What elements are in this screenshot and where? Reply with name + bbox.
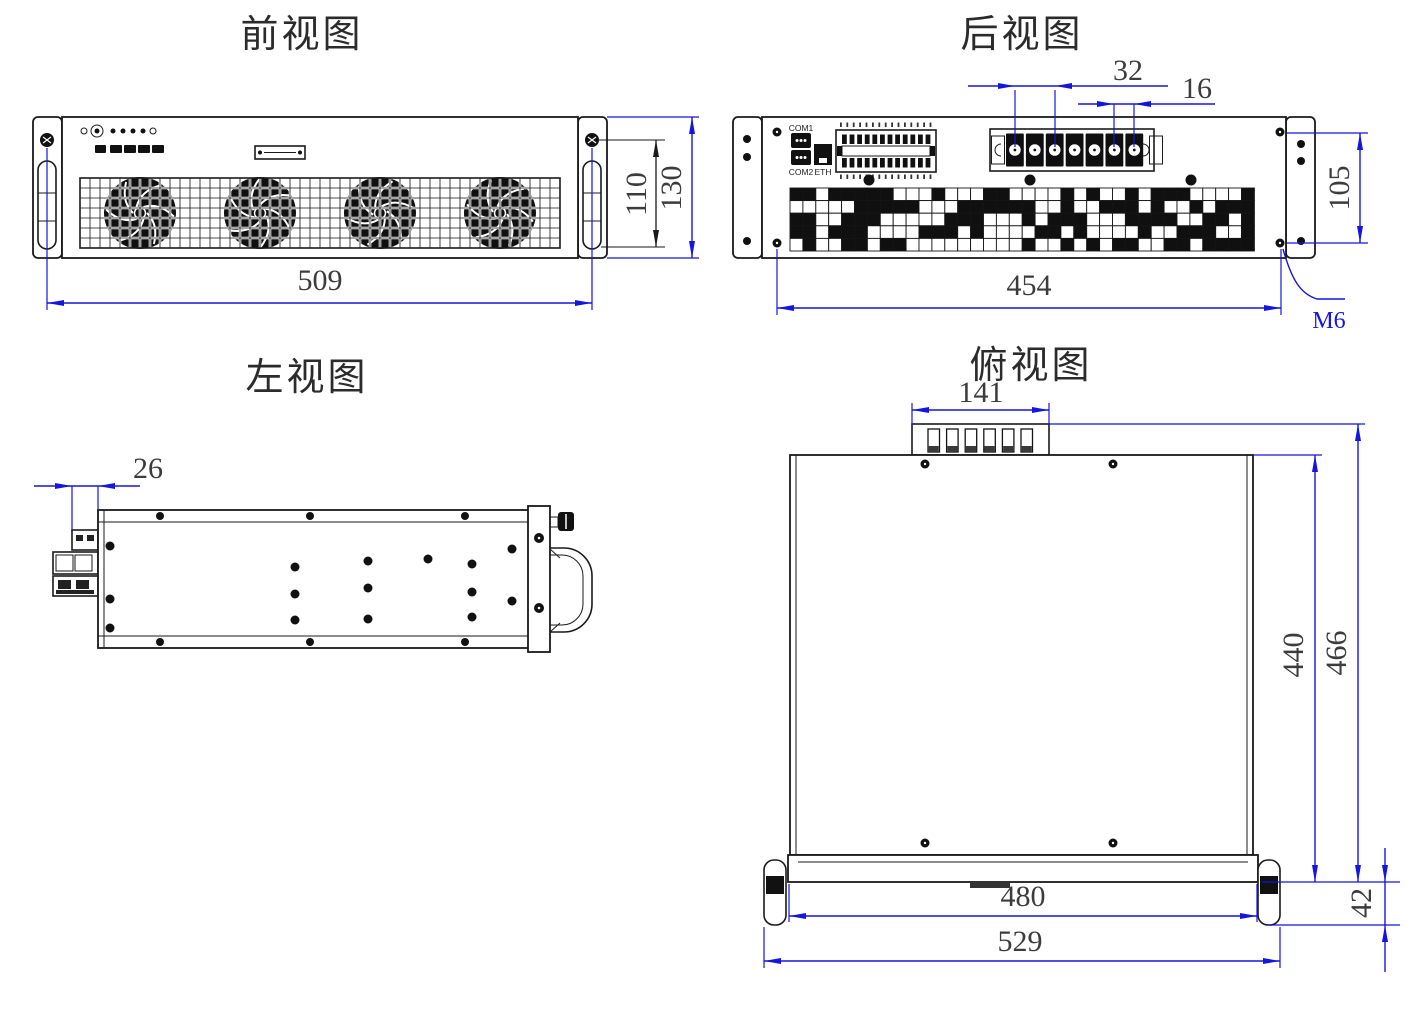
engineering-drawing: 前视图 bbox=[0, 0, 1411, 1011]
front-ear-side bbox=[528, 506, 550, 652]
fan-grille bbox=[80, 177, 560, 249]
handle-top-right bbox=[1258, 860, 1280, 925]
rear-view: 后视图 COM1 COM2 ETH bbox=[733, 14, 1368, 334]
dim-rear-pitch1: 16 bbox=[1182, 72, 1212, 105]
side-handle bbox=[550, 548, 592, 632]
rear-view-title: 后视图 bbox=[960, 14, 1083, 56]
top-view: 俯视图 141 440 bbox=[764, 345, 1400, 972]
power-terminal-block bbox=[990, 129, 1163, 171]
chassis-top bbox=[790, 455, 1253, 855]
dim-front-hole-span: 110 bbox=[620, 172, 653, 216]
com1-label: COM1 bbox=[789, 123, 814, 133]
dim-front-width: 509 bbox=[298, 264, 343, 297]
screw-spec-label: M6 bbox=[1312, 308, 1345, 334]
left-view-title: 左视图 bbox=[245, 357, 368, 399]
dim-rear-hole-span-v: 105 bbox=[1323, 166, 1356, 211]
front-panel-top bbox=[788, 855, 1258, 882]
com2-label: COM2 bbox=[789, 167, 814, 177]
dim-rear-hole-span-h: 454 bbox=[1007, 269, 1052, 302]
thumbscrew bbox=[550, 512, 574, 531]
rack-ear-right bbox=[1286, 117, 1315, 258]
signal-terminal-block bbox=[836, 123, 936, 180]
panel-marking bbox=[95, 145, 164, 153]
dim-rear-pitch2: 32 bbox=[1113, 54, 1143, 87]
name-plate bbox=[255, 146, 305, 159]
front-view: 前视图 bbox=[33, 14, 699, 310]
dim-front-height: 130 bbox=[655, 166, 688, 211]
dim-top-connector: 141 bbox=[959, 376, 1004, 409]
rear-vent-mesh bbox=[790, 188, 1254, 251]
dim-left-protrusion: 26 bbox=[133, 452, 163, 485]
handle-top-left bbox=[764, 860, 786, 925]
dim-top-overall-width: 529 bbox=[998, 925, 1043, 958]
eth-label: ETH bbox=[815, 167, 832, 177]
dim-top-handle: 42 bbox=[1345, 888, 1378, 918]
dim-top-overall-depth: 466 bbox=[1320, 631, 1353, 676]
front-view-title: 前视图 bbox=[240, 14, 363, 56]
dim-top-panel-width: 480 bbox=[1001, 880, 1046, 913]
dim-top-body-depth: 440 bbox=[1277, 633, 1310, 678]
left-view: 左视图 26 bbox=[34, 357, 592, 652]
engineering-drawing-page: 前视图 bbox=[0, 0, 1411, 1011]
chassis-side bbox=[98, 510, 532, 648]
